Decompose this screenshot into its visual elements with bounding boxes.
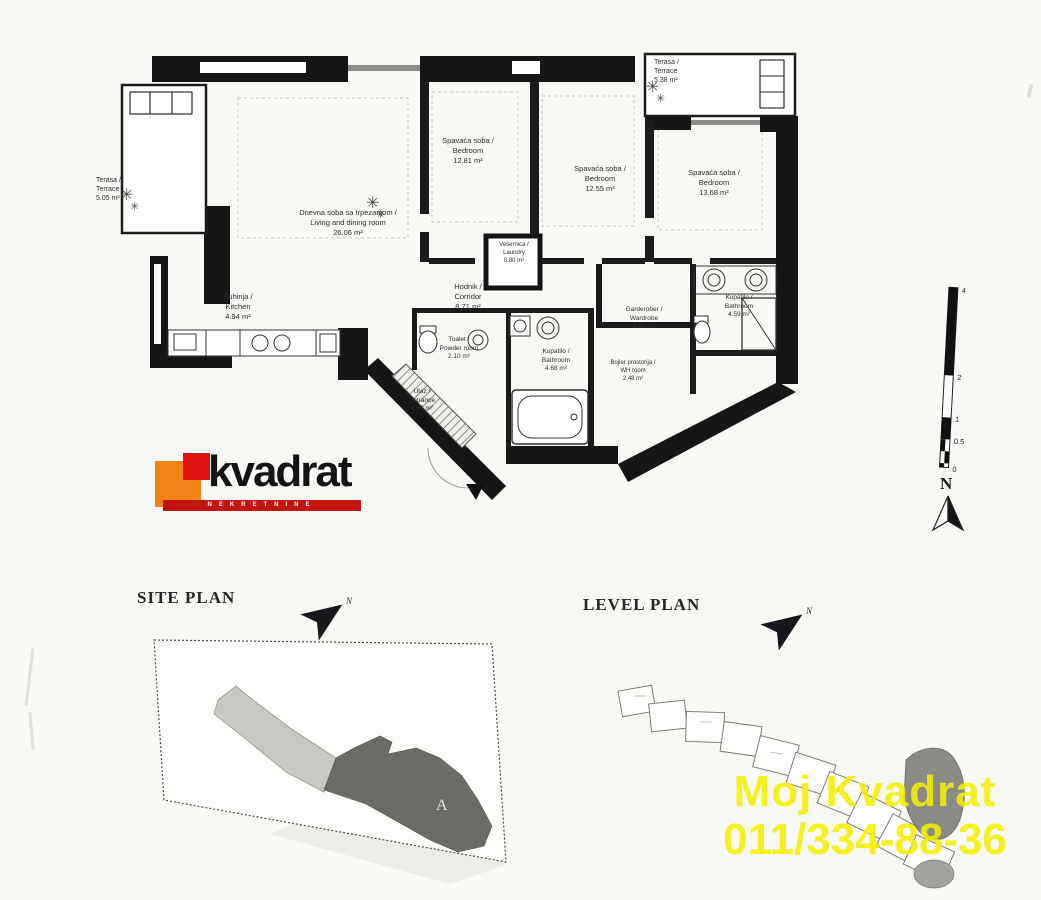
scan-smudge [1027,84,1034,99]
room-label-entrance: Ulaz / Entrance 4.66 m² [386,388,458,414]
room-label-laundry: Vešernica / Laundry 0.80 m² [488,242,540,266]
logo-wordmark: kvadrat [208,447,351,497]
room-label-toilet: Toalet / Powder room 2.10 m² [416,336,502,362]
scale-tick-05: 0.5 [954,437,965,447]
room-label-wardrobe: Garderober / Wardrobe 3.93 m² [598,306,690,332]
level-arrow-n-label: N [805,606,813,616]
scan-smudge [28,712,34,750]
scale-tick-4: 4 [962,286,967,295]
scale-bar: 4 2 1 0.5 0 [933,283,987,481]
scan-smudge [24,648,34,706]
kitchen-counter [168,330,340,356]
kvadrat-logo: kvadrat NEKRETNINE [155,453,370,513]
site-building-a-label: A [436,797,448,814]
scale-tick-2: 2 [957,373,962,382]
room-label-terrace-left: Terasa / Terrace 5.05 m² [96,176,168,204]
room-label-boiler: Bojler prostorija / WH room 2.48 m² [590,360,676,384]
scale-tick-1: 1 [955,415,960,424]
agency-watermark: Moj Kvadrat 011/334-88-36 [700,768,1030,865]
entrance-door-marker [466,484,484,500]
watermark-phone: 011/334-88-36 [700,816,1030,864]
room-label-kitchen: Kuhinja / Kitchen 4.94 m² [200,292,276,322]
compass-north-icon: N [926,472,970,534]
room-label-bathroom-main: Kupatilo / Bathroom 4.68 m² [518,348,594,374]
room-label-bedroom2: Spavaća soba / Bedroom 12.55 m² [544,164,656,194]
watermark-name: Moj Kvadrat [700,768,1030,816]
site-plan-drawing: A [140,630,535,895]
bathroom-fixtures [510,316,588,444]
level-plan-north-icon: N [760,602,820,650]
svg-text:✳: ✳ [656,92,665,105]
room-label-living: Dnevna soba sa trpezarijom / Living and … [248,208,448,238]
logo-subtitle-bar: NEKRETNINE [163,500,361,511]
floor-plan-drawing: ✳✳ ✳✳ ✳✳ [110,40,810,510]
compass-n-label: N [940,474,953,493]
room-label-corridor: Hodnik / Corridor 8.71 m² [426,282,510,312]
room-label-bathroom-ensuite: Kupatilo / Bathroom 4.59 m² [700,294,778,320]
scanned-floorplan-page: ✳✳ ✳✳ ✳✳ Terasa / Terrace 5.05 m² Dnevna… [0,0,1041,900]
site-plan-title: SITE PLAN [137,588,235,608]
level-plan-title: LEVEL PLAN [583,595,700,615]
site-arrow-n-label: N [345,596,353,606]
logo-red-square [183,453,210,480]
room-label-bedroom1: Spavaća soba / Bedroom 12.81 m² [412,136,524,166]
room-label-bedroom3: Spavaća soba / Bedroom 13.68 m² [658,168,770,198]
room-label-terrace-right: Terasa / Terrace 5.38 m² [654,58,718,86]
